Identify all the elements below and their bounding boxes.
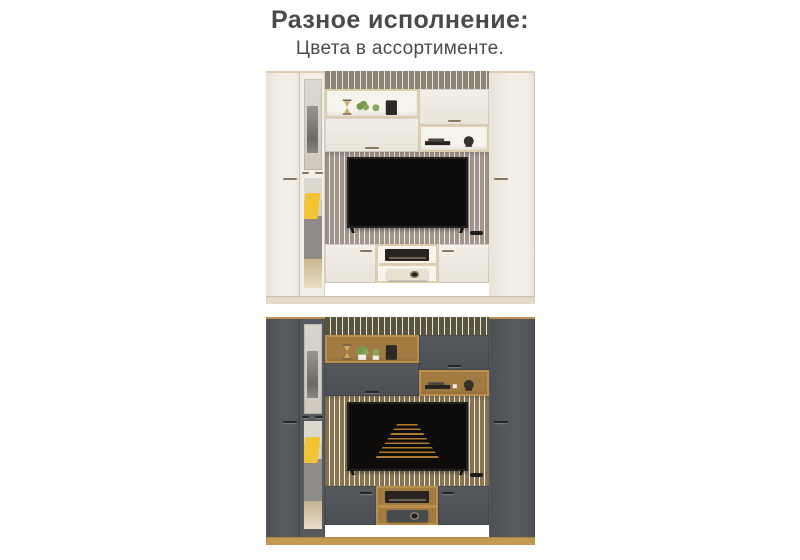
mirror-reflection-art bbox=[307, 106, 318, 154]
decor-items bbox=[329, 339, 415, 362]
flap-door-handle bbox=[365, 391, 379, 393]
mirror-handle-bottom bbox=[315, 416, 323, 418]
tv-leg bbox=[459, 228, 464, 233]
stand-left-handle bbox=[360, 492, 372, 494]
vase-icon bbox=[464, 380, 474, 390]
cup-icon bbox=[453, 140, 457, 144]
upper-right-door bbox=[419, 89, 490, 126]
header: Разное исполнение: Цвета в ассортименте. bbox=[0, 6, 800, 60]
radio-icon bbox=[425, 141, 450, 145]
stand-right-door bbox=[438, 486, 489, 525]
game-controller-icon bbox=[470, 473, 482, 477]
left-wardrobe-door bbox=[266, 71, 300, 296]
media-device-icon bbox=[387, 510, 428, 522]
tv-screen bbox=[347, 157, 468, 228]
shelf-items bbox=[421, 129, 487, 151]
speaker-box-icon bbox=[386, 100, 397, 115]
right-wardrobe-door bbox=[489, 317, 535, 537]
base-plinth bbox=[266, 537, 535, 545]
left-wardrobe-handle bbox=[283, 421, 297, 423]
shelf-items bbox=[421, 373, 487, 394]
shelf-divider bbox=[379, 505, 436, 508]
av-receiver-icon bbox=[385, 491, 429, 503]
shelf-divider bbox=[379, 263, 436, 266]
mirror-lower-panel bbox=[304, 421, 322, 529]
speaker-box-icon bbox=[386, 345, 397, 360]
mirror-reflection-sofa bbox=[304, 459, 322, 502]
mirror-handle-top bbox=[302, 416, 310, 418]
flap-door bbox=[325, 118, 419, 152]
stand-left-handle bbox=[360, 250, 372, 252]
right-wardrobe-handle bbox=[494, 421, 509, 423]
mirror-reflection-floor bbox=[304, 501, 322, 529]
stand-right-handle bbox=[442, 250, 454, 252]
hourglass-icon bbox=[344, 346, 350, 352]
flap-door bbox=[325, 363, 419, 396]
tv-stand bbox=[325, 486, 489, 525]
left-wardrobe-handle bbox=[283, 178, 297, 180]
radio-icon bbox=[425, 385, 450, 389]
decor-items bbox=[329, 94, 415, 117]
mirror-reflection-sofa bbox=[304, 216, 322, 260]
mirror-reflection-floor bbox=[304, 259, 322, 288]
mirror-reflection-art bbox=[307, 351, 318, 397]
stand-open-shelves bbox=[376, 244, 438, 283]
upper-right-door-handle bbox=[448, 120, 461, 122]
tv-screen bbox=[347, 402, 468, 471]
tv-stand bbox=[325, 244, 489, 283]
cup-icon bbox=[453, 385, 457, 389]
stand-right-door bbox=[438, 244, 489, 283]
page-title: Разное исполнение: bbox=[0, 6, 800, 35]
right-wardrobe-handle bbox=[494, 178, 509, 180]
page: Разное исполнение: Цвета в ассортименте. bbox=[0, 0, 800, 560]
upper-right-door bbox=[419, 335, 490, 371]
left-wardrobe-door bbox=[266, 317, 300, 537]
wall-unit-photo-graphite bbox=[266, 317, 535, 545]
upper-cabinets bbox=[325, 89, 489, 152]
mirror-handle-top bbox=[302, 172, 310, 174]
tv-backpanel bbox=[325, 396, 489, 486]
stand-left-door bbox=[325, 244, 376, 283]
wall-unit bbox=[266, 71, 535, 304]
media-device-icon bbox=[387, 269, 428, 281]
base-plinth bbox=[266, 296, 535, 304]
mirror-handle-bottom bbox=[315, 172, 323, 174]
hourglass-icon bbox=[344, 101, 350, 107]
center-section bbox=[325, 317, 489, 537]
tv-backpanel bbox=[325, 152, 489, 244]
upper-cabinets bbox=[325, 335, 489, 397]
display-shelf bbox=[325, 89, 419, 118]
flap-door-handle bbox=[365, 147, 379, 149]
mirror-upper-panel bbox=[304, 79, 322, 170]
upper-right-door-handle bbox=[448, 365, 461, 367]
plant-pot-icon bbox=[358, 110, 366, 115]
plant-icon bbox=[372, 104, 379, 111]
mirror-lower-panel bbox=[304, 178, 322, 288]
mirror-upper-panel bbox=[304, 324, 322, 413]
av-receiver-icon bbox=[385, 249, 429, 262]
open-shelf bbox=[419, 125, 490, 151]
right-wardrobe-door bbox=[489, 71, 535, 296]
mirror-cabinet bbox=[300, 317, 326, 537]
vase-icon bbox=[464, 136, 474, 146]
movie-text-crawl bbox=[374, 421, 440, 460]
stand-open-shelves bbox=[376, 486, 438, 525]
center-section bbox=[325, 71, 489, 296]
stand-right-handle bbox=[442, 492, 454, 494]
game-controller-icon bbox=[470, 231, 482, 235]
page-subtitle: Цвета в ассортименте. bbox=[0, 38, 800, 60]
display-shelf bbox=[325, 335, 419, 363]
wall-unit-photo-white bbox=[266, 71, 535, 304]
wall-unit bbox=[266, 317, 535, 545]
stand-left-door bbox=[325, 486, 376, 525]
open-shelf bbox=[419, 370, 490, 396]
plant-pot-icon bbox=[358, 355, 366, 360]
plant-icon bbox=[372, 349, 379, 356]
mirror-cabinet bbox=[300, 71, 326, 296]
tv-leg bbox=[459, 470, 464, 475]
